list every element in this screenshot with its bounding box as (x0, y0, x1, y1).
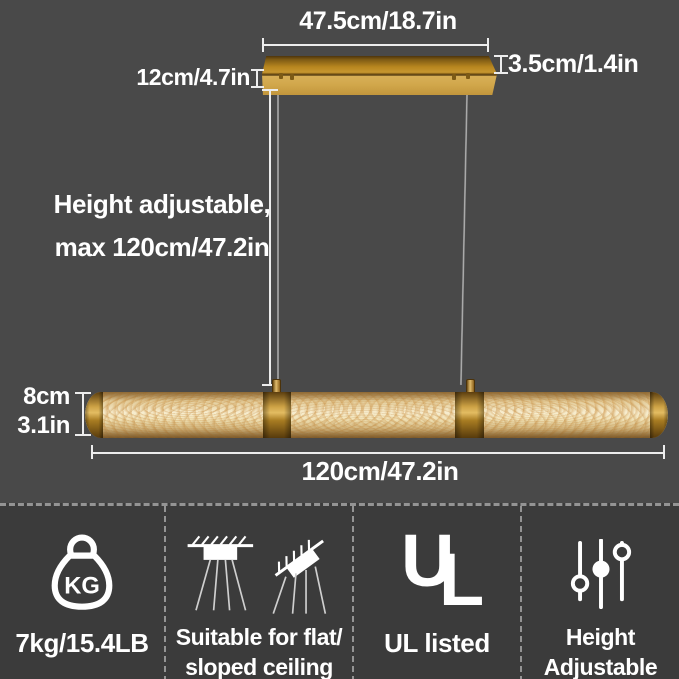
ceiling-label-line2: sloped ceiling (176, 652, 343, 679)
bar-height-in: 3.1in (6, 411, 70, 440)
kg-badge-text: KG (64, 572, 100, 599)
ul-label: UL listed (384, 628, 490, 658)
canopy-width-label: 47.5cm/18.7in (253, 7, 503, 36)
bar-length-label: 120cm/47.2in (275, 456, 485, 487)
screw-detail (279, 73, 283, 79)
feature-strip: KG 7kg/15.4LB (0, 503, 679, 679)
feature-panel-weight: KG 7kg/15.4LB (0, 506, 164, 679)
ceiling-label: Suitable for flat/ sloped ceiling (176, 622, 343, 679)
canopy-thickness-measure-line (500, 56, 502, 73)
bar-height-cm: 8cm (6, 382, 70, 411)
feature-panel-ul: U L UL listed (352, 506, 520, 679)
bar-height-label: 8cm 3.1in (6, 382, 70, 440)
ul-logo-icon: U L (401, 530, 473, 620)
canopy-width-measure-line (263, 44, 489, 46)
suspension-cable-right (460, 95, 468, 385)
brass-band-right (455, 392, 484, 438)
screw-detail (452, 74, 456, 80)
canopy-joint-line (262, 74, 497, 76)
height-adjustable-label: Height Adjustable (544, 622, 658, 679)
weight-kg-icon: KG (38, 530, 126, 620)
weight-label: 7kg/15.4LB (15, 628, 148, 658)
measure-tick (262, 38, 264, 52)
height-label-line1: Height (544, 622, 658, 652)
suspension-cable-left (277, 95, 279, 385)
bar-length-measure-line (92, 452, 665, 454)
bar-cylinder-shading (85, 392, 668, 438)
screw-detail (290, 74, 294, 80)
brass-band-left (263, 392, 291, 438)
feature-panel-height-adjustable: Height Adjustable (520, 506, 679, 679)
height-adjustable-note: Height adjustable, max 120cm/47.2in (52, 183, 272, 269)
height-label-line2: Adjustable (544, 652, 658, 679)
screw-detail (466, 73, 470, 79)
ul-letter-l: L (439, 543, 484, 617)
pendant-light-dimension-diagram: 47.5cm/18.7in 3.5cm/1.4in 12cm/4.7in Hei… (0, 0, 679, 679)
bar-height-measure-line (82, 393, 84, 435)
sliders-icon (568, 530, 634, 620)
ceiling-canopy (262, 56, 497, 95)
canopy-depth-label: 12cm/4.7in (105, 64, 250, 91)
measure-tick (487, 38, 489, 52)
linear-lamp-bar (85, 392, 668, 438)
height-adjustable-line2: max 120cm/47.2in (52, 226, 272, 269)
height-adjustable-line1: Height adjustable, (52, 183, 272, 226)
ceiling-label-line1: Suitable for flat/ (176, 622, 343, 652)
feature-panel-ceiling: Suitable for flat/ sloped ceiling (164, 506, 352, 679)
canopy-thickness-label: 3.5cm/1.4in (508, 50, 638, 79)
canopy-depth-measure-line (256, 70, 258, 87)
flat-sloped-ceiling-icon (179, 530, 339, 620)
